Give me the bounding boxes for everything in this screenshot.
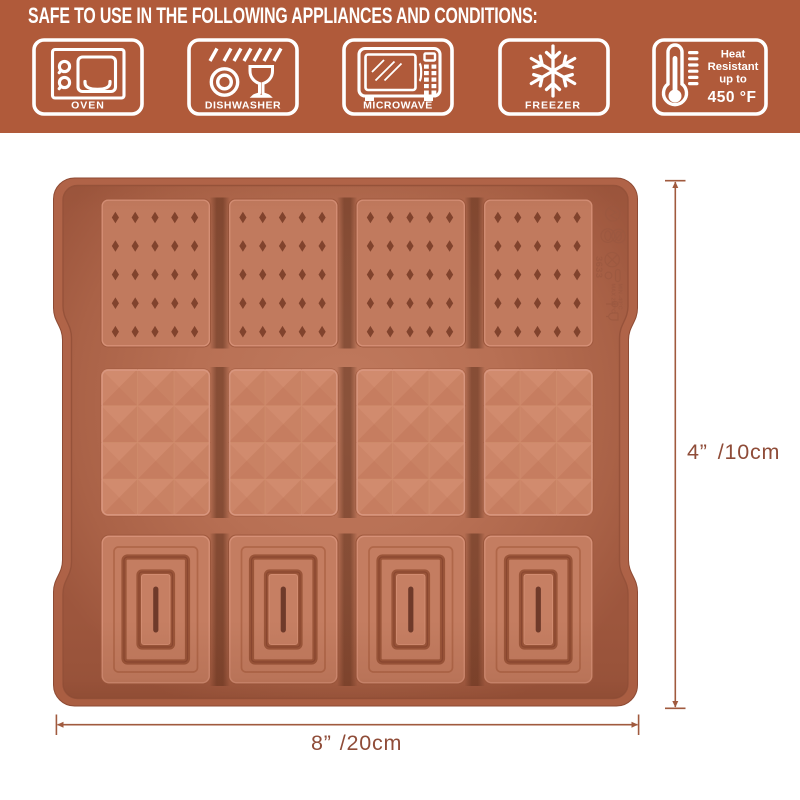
svg-text:FREEZER: FREEZER [525,100,581,112]
svg-text:OVEN: OVEN [71,100,105,112]
svg-text:450 °F: 450 °F [708,89,757,106]
svg-text:Heat: Heat [721,49,746,61]
svg-text:MICROWAVE: MICROWAVE [363,100,433,112]
svg-text:DISHWASHER: DISHWASHER [205,100,281,112]
svg-text:8”/20cm: 8”/20cm [311,731,402,755]
svg-text:Resistant: Resistant [708,61,759,73]
svg-text:up to: up to [719,74,747,86]
svg-text:4”/10cm: 4”/10cm [687,440,780,464]
